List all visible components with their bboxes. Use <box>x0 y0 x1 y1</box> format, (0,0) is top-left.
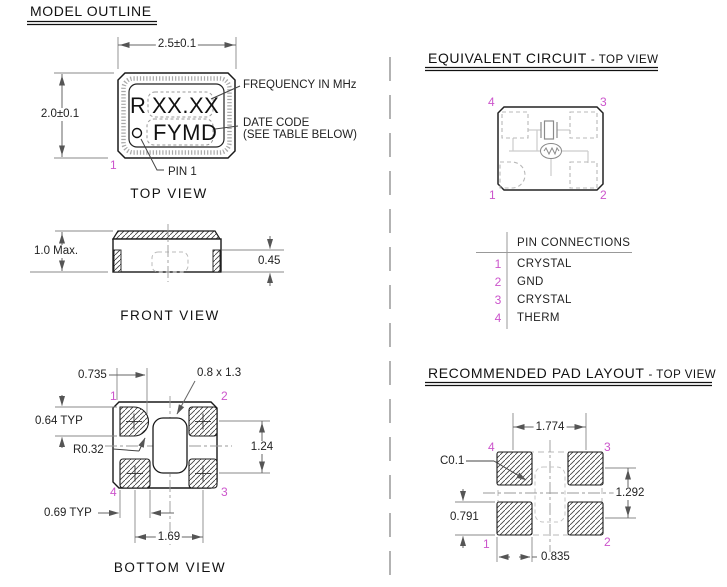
pin1-indicator-dot <box>133 129 142 138</box>
marking-datecode: FYMD <box>153 121 217 145</box>
bottom-pin-1: 1 <box>110 390 117 403</box>
frequency-callout: FREQUENCY IN MHz <box>243 79 357 92</box>
layout-pin-2: 2 <box>604 536 611 549</box>
layout-pin-1: 1 <box>483 538 490 551</box>
pin-row-3-number: 3 <box>492 294 504 307</box>
top-width-dimension: 2.5±0.1 <box>156 38 198 51</box>
layout-pad-width-dimension: 0.835 <box>541 551 570 564</box>
front-view-castellation-left <box>114 250 121 272</box>
layout-pad-3 <box>568 452 603 485</box>
bottom-cavity-dimension: 0.8 x 1.3 <box>197 367 241 380</box>
bottom-pin-3: 3 <box>221 486 228 499</box>
top-view-pin1-number: 1 <box>110 159 117 172</box>
top-view-caption: TOP VIEW <box>109 187 229 202</box>
model-outline-sheet: MODEL OUTLINE EQUIVALENT CIRCUIT- TOP VI… <box>0 0 727 587</box>
pin-row-2-number: 2 <box>492 276 504 289</box>
pad-layout-title: RECOMMENDED PAD LAYOUT- TOP VIEW <box>428 366 716 382</box>
pin-row-2-name: GND <box>517 276 544 289</box>
front-view-lid <box>113 231 220 239</box>
layout-pin-3: 3 <box>604 441 611 454</box>
circuit-pin-1: 1 <box>489 189 496 202</box>
equivalent-circuit-title-sub: - TOP VIEW <box>591 54 659 66</box>
layout-pad-2 <box>568 502 603 535</box>
datecode-callout-line2: (SEE TABLE BELOW) <box>243 129 357 142</box>
bottom-pin-4: 4 <box>110 486 117 499</box>
pin-row-4-number: 4 <box>492 312 504 325</box>
bottom-col-pitch-dimension: 1.69 <box>156 531 182 544</box>
circuit-pin-4: 4 <box>488 96 495 109</box>
pin-row-4-name: THERM <box>517 312 560 325</box>
bottom-pad-width-dimension: 0.69 TYP <box>44 507 92 520</box>
layout-chamfer-dimension: C0.1 <box>440 455 464 468</box>
layout-pin-4: 4 <box>488 441 495 454</box>
equivalent-circuit-title-main: EQUIVALENT CIRCUIT <box>428 50 587 66</box>
bottom-pad-offset-dimension: 0.735 <box>76 369 109 382</box>
pin1-callout: PIN 1 <box>168 166 197 179</box>
bottom-pin-2: 2 <box>221 390 228 403</box>
layout-col-pitch-dimension: 1.774 <box>534 421 567 434</box>
layout-pad-4 <box>497 452 532 485</box>
bottom-view-caption: BOTTOM VIEW <box>100 561 240 576</box>
layout-pad-height-dimension: 0.791 <box>450 511 479 524</box>
marking-frequency: XX.XX <box>152 94 219 118</box>
bottom-corner-radius-dimension: R0.32 <box>73 444 104 457</box>
layout-pad-1 <box>497 502 532 535</box>
pin-connections-header: PIN CONNECTIONS <box>517 237 630 250</box>
front-view-caption: FRONT VIEW <box>110 309 230 324</box>
datecode-callout-line1: DATE CODE <box>243 117 309 130</box>
circuit-pin-3: 3 <box>600 96 607 109</box>
front-height-dimension: 1.0 Max. <box>32 245 80 258</box>
front-view-castellation-right <box>213 250 220 272</box>
bottom-row-pitch-dimension: 1.24 <box>249 441 275 454</box>
layout-row-pitch-dimension: 1.292 <box>614 487 647 500</box>
pin-row-1-name: CRYSTAL <box>517 258 572 271</box>
sheet-title: MODEL OUTLINE <box>30 4 152 19</box>
equivalent-circuit-title: EQUIVALENT CIRCUIT- TOP VIEW <box>428 51 659 67</box>
circuit-pin-2: 2 <box>600 189 607 202</box>
marking-prefix: R <box>130 94 146 118</box>
front-view-body <box>113 239 221 272</box>
pin-row-1-number: 1 <box>492 258 504 271</box>
bottom-view-cavity <box>153 418 187 473</box>
thermistor-symbol <box>541 144 562 159</box>
front-castellation-dimension: 0.45 <box>256 255 282 268</box>
pad-layout-title-sub: - TOP VIEW <box>648 369 716 381</box>
bottom-pad-height-dimension: 0.64 TYP <box>35 415 83 428</box>
pad-layout-title-main: RECOMMENDED PAD LAYOUT <box>428 365 644 381</box>
equivalent-circuit-drawing <box>498 107 603 190</box>
pin-row-3-name: CRYSTAL <box>517 294 572 307</box>
top-height-dimension: 2.0±0.1 <box>39 108 81 121</box>
